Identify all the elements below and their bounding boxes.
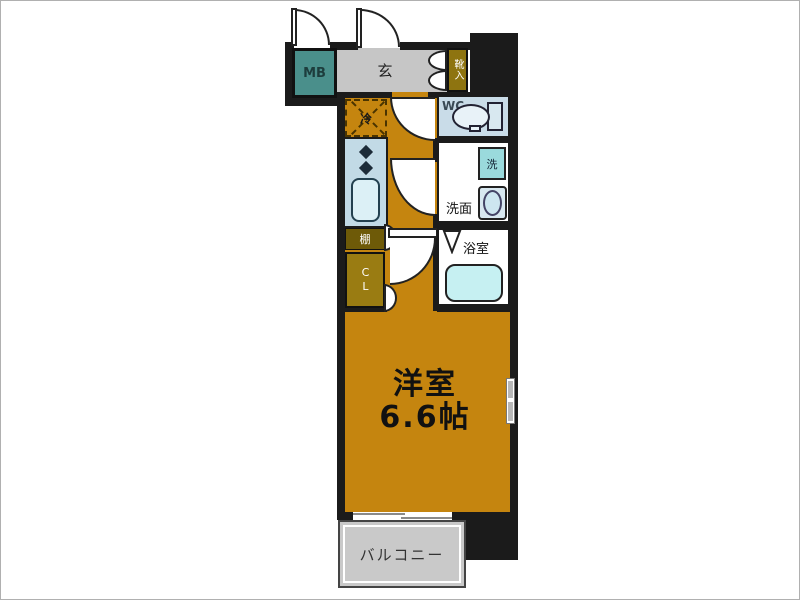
mainroom-door-leaf-icon	[388, 228, 438, 238]
wall-bottom-left	[337, 512, 353, 520]
balcony: バルコニー	[338, 520, 466, 588]
balcony-window-pane-left	[353, 513, 405, 515]
shoe-storage-box: 靴入	[447, 48, 468, 92]
western-room-label: 洋室 6.6帖	[345, 368, 505, 438]
toilet-base	[469, 125, 481, 132]
stove-burner-icon-bottom	[359, 161, 373, 175]
meter-box: MB	[292, 48, 337, 98]
right-wall-window-icon	[506, 378, 515, 424]
washbasin-bowl	[483, 190, 502, 216]
floor-plan: 玄 MB 靴入 冷 棚 C	[0, 0, 800, 600]
wall-below-entrance	[337, 92, 392, 98]
bath-folding-door-icon	[442, 230, 462, 254]
closet-box: CL	[345, 252, 385, 308]
wall-mass-top-right	[470, 33, 518, 95]
balcony-window-pane-right	[401, 517, 452, 519]
shelf-box: 棚	[345, 228, 385, 250]
wall-bath-mainroom	[437, 306, 518, 312]
washing-machine-label: 洗	[487, 156, 498, 172]
western-room-size: 6.6帖	[379, 400, 470, 435]
refrigerator-label: 冷	[360, 110, 372, 127]
refrigerator-space: 冷	[345, 99, 387, 137]
bathroom: 浴室	[437, 228, 510, 306]
meter-box-label: MB	[303, 66, 326, 81]
stove-burner-icon-top	[359, 145, 373, 159]
wall-right-main	[510, 92, 518, 560]
wall-mass-bottom-right	[466, 518, 518, 560]
right-window-pane-bottom	[508, 402, 513, 421]
washing-machine-icon: 洗	[478, 147, 506, 180]
western-room-name: 洋室	[393, 367, 457, 402]
kitchen-sink-icon	[351, 178, 380, 222]
kitchen-counter	[343, 137, 388, 228]
shelf-label: 棚	[360, 231, 371, 247]
mb-door-leaf-icon	[291, 8, 297, 46]
washbasin-icon	[478, 186, 507, 220]
entrance-door-swing-icon	[360, 9, 400, 47]
wall-below-mb	[285, 98, 345, 106]
wall-left-of-mb	[285, 42, 292, 106]
entrance-door-leaf-icon	[356, 8, 362, 48]
bathroom-label: 浴室	[463, 238, 489, 257]
right-window-pane-top	[508, 381, 513, 398]
balcony-window-icon	[353, 512, 452, 520]
shoe-storage-label: 靴入	[452, 59, 463, 81]
bathtub-icon	[445, 264, 503, 302]
mb-door-swing-icon	[294, 9, 330, 45]
closet-label: CL	[359, 266, 371, 294]
washroom: 洗 洗面	[437, 141, 510, 223]
entrance-label: 玄	[360, 55, 410, 85]
entrance-text: 玄	[377, 60, 392, 81]
wc-room: WC	[437, 95, 510, 138]
washroom-label: 洗面	[446, 198, 472, 217]
balcony-label: バルコニー	[360, 544, 445, 565]
